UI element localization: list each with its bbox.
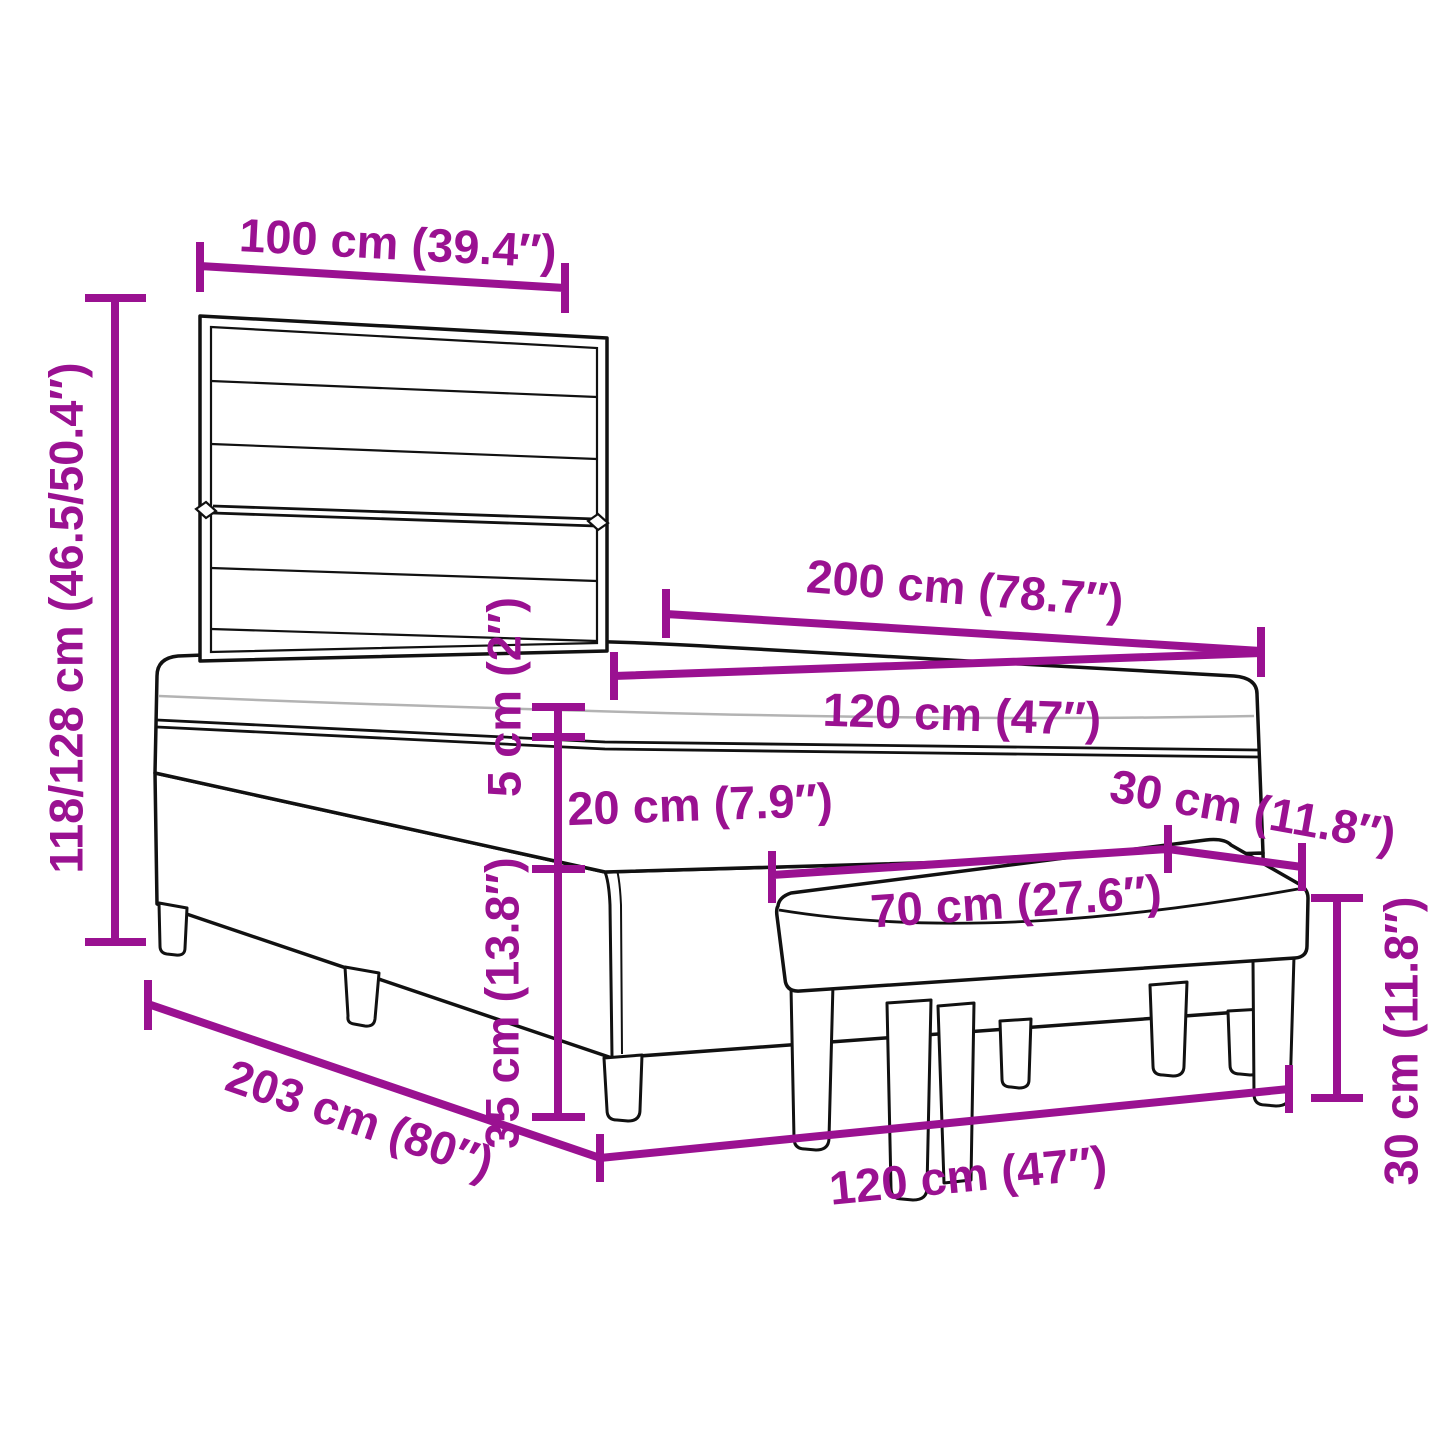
dimension-line-bench-height <box>1311 898 1363 1098</box>
label-mattress-thickness: 20 cm (7.9″) <box>566 773 833 835</box>
label-topper-thickness: 5 cm (2″) <box>478 597 531 797</box>
label-mattress-length: 200 cm (78.7″) <box>805 549 1126 627</box>
bed-leg <box>345 967 379 1026</box>
bed-diagram-canvas: 100 cm (39.4″) 118/128 cm (46.5/50.4″) 2… <box>0 0 1445 1445</box>
bench-leg <box>791 984 833 1150</box>
bed-leg <box>1000 1019 1031 1088</box>
headboard <box>196 316 608 661</box>
bed-leg <box>159 903 187 955</box>
label-total-height: 118/128 cm (46.5/50.4″) <box>40 362 93 873</box>
dimension-line-total-height <box>85 298 146 942</box>
label-base-height: 35 cm (13.8″) <box>476 857 529 1149</box>
bed-leg <box>604 1055 642 1121</box>
bench-leg <box>1150 982 1187 1076</box>
dimension-diagram: 100 cm (39.4″) 118/128 cm (46.5/50.4″) 2… <box>0 0 1445 1445</box>
label-bed-length: 203 cm (80″) <box>220 1049 501 1190</box>
label-mattress-width: 120 cm (47″) <box>822 683 1102 746</box>
label-bench-height: 30 cm (11.8″) <box>1375 896 1428 1185</box>
